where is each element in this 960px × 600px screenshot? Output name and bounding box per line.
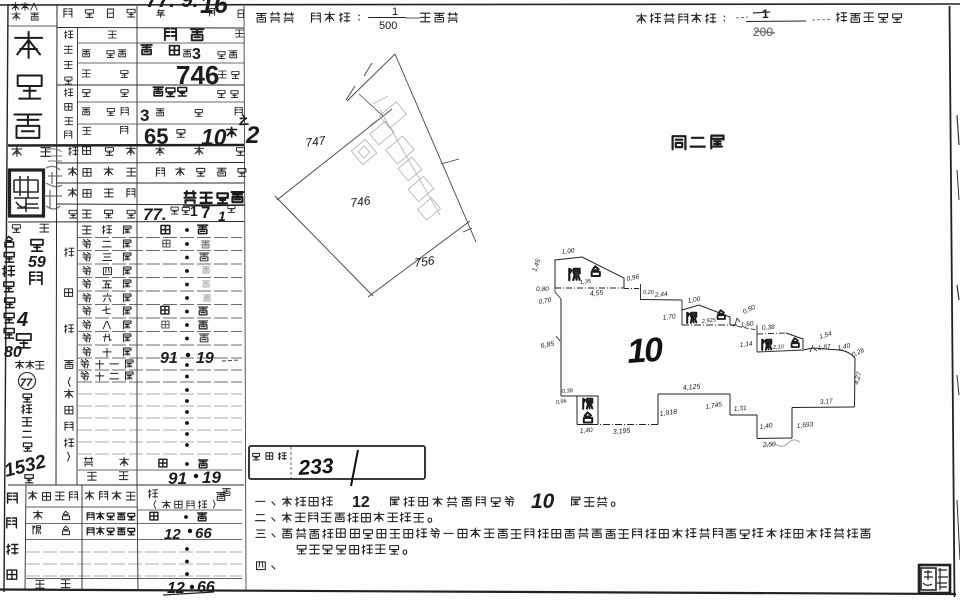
svg-text:4: 4 xyxy=(16,309,28,331)
svg-text:91: 91 xyxy=(160,350,178,367)
svg-text:1,14: 1,14 xyxy=(739,341,753,349)
svg-text:1: 1 xyxy=(190,203,198,219)
svg-text:747: 747 xyxy=(304,133,327,150)
svg-text:7: 7 xyxy=(201,203,210,222)
svg-text:12: 12 xyxy=(164,526,181,543)
svg-text:746: 746 xyxy=(176,60,219,90)
svg-text:2: 2 xyxy=(245,122,260,149)
svg-text:1,31: 1,31 xyxy=(734,405,748,413)
svg-text:65: 65 xyxy=(144,124,168,149)
svg-text:0,20: 0,20 xyxy=(643,290,655,296)
svg-text:59: 59 xyxy=(28,254,46,271)
svg-text:2,44: 2,44 xyxy=(654,291,669,299)
svg-text:10: 10 xyxy=(626,331,664,371)
svg-text:80: 80 xyxy=(4,344,22,361)
svg-text:1: 1 xyxy=(762,7,769,21)
svg-text:0,80: 0,80 xyxy=(536,286,549,293)
svg-text:19: 19 xyxy=(196,350,214,367)
svg-text:10: 10 xyxy=(201,124,227,150)
svg-text:1,87: 1,87 xyxy=(817,344,831,352)
svg-text:77. 9.: 77. 9. xyxy=(146,0,199,12)
svg-text:12: 12 xyxy=(352,494,370,511)
svg-text:91: 91 xyxy=(168,469,187,488)
svg-text:1,35: 1,35 xyxy=(580,279,593,286)
svg-text:77: 77 xyxy=(20,377,33,389)
svg-text:3,17: 3,17 xyxy=(820,398,834,406)
svg-text:10: 10 xyxy=(531,490,555,513)
svg-text:500: 500 xyxy=(379,20,397,32)
svg-text:66: 66 xyxy=(195,525,212,542)
svg-text:19: 19 xyxy=(202,468,221,487)
svg-text:1: 1 xyxy=(392,6,398,18)
svg-text:3: 3 xyxy=(140,106,149,125)
svg-text:2,10: 2,10 xyxy=(772,344,785,351)
svg-text:4,55: 4,55 xyxy=(589,290,603,298)
svg-text:66: 66 xyxy=(197,579,215,596)
svg-text:0,38: 0,38 xyxy=(562,388,574,395)
svg-text:756: 756 xyxy=(413,253,435,270)
svg-text:233: 233 xyxy=(297,455,335,480)
svg-text:16: 16 xyxy=(200,0,229,19)
svg-text:746: 746 xyxy=(349,193,371,210)
svg-text:2,50: 2,50 xyxy=(762,441,777,449)
svg-text:77.: 77. xyxy=(143,205,167,224)
svg-text:0,38: 0,38 xyxy=(762,324,776,332)
svg-text:1: 1 xyxy=(218,208,226,224)
svg-text:1,40: 1,40 xyxy=(580,427,594,435)
